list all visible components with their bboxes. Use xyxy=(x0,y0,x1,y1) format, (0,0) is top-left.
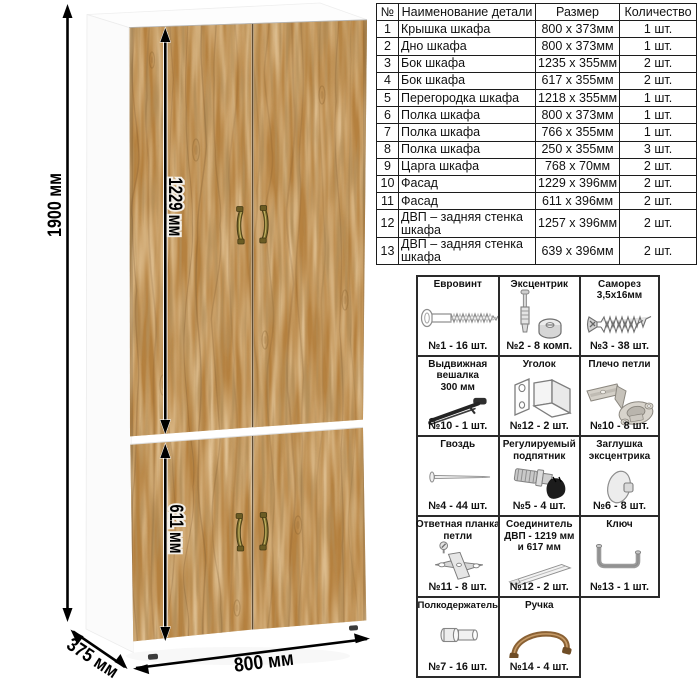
svg-text:1229 мм: 1229 мм xyxy=(164,178,185,237)
svg-text:1900 мм: 1900 мм xyxy=(44,173,66,237)
svg-text:611 мм: 611 мм xyxy=(165,505,186,554)
